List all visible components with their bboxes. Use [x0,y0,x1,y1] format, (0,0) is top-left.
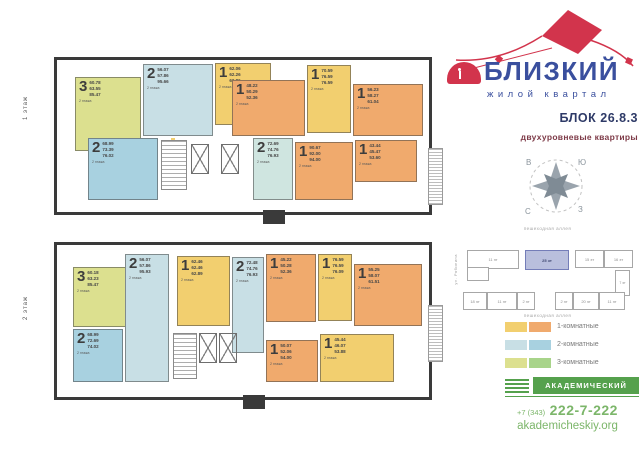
unit-level-note: 2 этажа [257,160,291,164]
stairs [173,333,197,379]
site-building: 2 эт [555,292,573,310]
apartment-unit[interactable]: 156.23 58.27 61.04 2 этажа [353,84,423,136]
site-building-label: 11 эт [497,299,506,304]
unit-level-note: 2 этажа [299,164,351,168]
brand-tagline: жилой квартал [487,89,611,100]
legend-label: 1-комнатные [557,323,599,330]
unit-areas: 43.44 45.47 53.60 [369,143,380,161]
apartment-unit[interactable]: 176.59 76.59 76.09 2 этажа [318,254,352,321]
site-building-label: 2 эт [522,299,529,304]
entrance [243,395,265,409]
unit-rooms: 1 [270,343,278,357]
elevator-shaft [199,333,217,363]
unit-areas: 56.23 58.27 61.04 [367,87,378,105]
site-building-label: 11 эт [488,257,497,262]
unit-areas: 90.67 92.00 94.00 [309,145,320,163]
site-building-label: 18 эт [470,299,479,304]
apartment-unit[interactable]: 143.44 45.47 53.60 2 этажа [355,140,417,182]
unit-rooms: 2 [257,141,265,155]
elevator-shaft [221,144,239,174]
apartment-unit[interactable]: 256.07 57.86 95.66 2 этажа [143,64,213,136]
unit-rooms: 2 [147,67,155,81]
site-building-label: 2 эт [560,299,567,304]
site-building-label: 20 эт [581,299,590,304]
apartment-unit[interactable]: 190.67 92.00 94.00 2 этажа [295,142,353,200]
alley-label-bottom: пешеходная аллея [455,313,640,318]
unit-level-note: 2 этажа [322,276,350,280]
developer-logo: АКАДЕМИЧЕСКИЙ [533,377,639,394]
logo-figure-icon [459,71,461,79]
unit-areas: 55.25 58.07 61.51 [368,267,379,285]
unit-areas: 60.78 63.55 85.47 [89,80,100,98]
elevator-shaft [191,144,209,174]
unit-areas: 45.22 50.28 52.36 [280,257,291,275]
unit-rooms: 2 [236,260,244,274]
legend: 1-комнатные 2-комнатные 3-комнатные [505,320,640,374]
unit-rooms: 1 [358,267,366,281]
unit-areas: 68.99 72.69 74.02 [87,332,98,350]
unit-areas: 56.07 57.86 95.66 [157,67,168,85]
site-building-label: 15 эт [585,257,594,262]
block-number: БЛОК 26.8.3 [440,111,638,125]
site-building: 2 эт [517,292,535,310]
unit-level-note: 2 этажа [92,160,156,164]
legend-row-1: 1-комнатные [505,320,640,338]
unit-level-note: 2 этажа [77,351,121,355]
alley-label-top: пешеходная аллея [455,226,640,231]
site-building-highlighted[interactable]: 25 эт [525,250,569,270]
unit-areas: 72.69 74.76 76.93 [267,141,278,159]
unit-areas: 76.59 76.59 76.09 [332,257,343,275]
unit-rooms: 2 [92,141,100,155]
unit-level-note: 2 этажа [270,362,316,366]
unit-areas: 45.44 46.07 53.88 [334,337,345,355]
svg-text:Ю: Ю [578,158,586,167]
legend-swatch [505,322,527,332]
unit-rooms: 1 [270,257,278,271]
unit-level-note: 2 этажа [324,356,392,360]
site-building: 15 эт [575,250,604,268]
site-building [467,267,489,281]
phone-prefix: +7 (343) [517,408,545,417]
floor-1-label: 1 этаж [23,88,29,128]
apartment-unit[interactable]: 148.22 50.29 52.36 2 этажа [232,80,305,136]
unit-level-note: 2 этажа [79,99,139,103]
legend-row-2: 2-комнатные [505,338,640,356]
unit-rooms: 1 [236,83,244,97]
legend-label: 3-комнатные [557,359,599,366]
unit-rooms: 1 [359,143,367,157]
unit-areas: 72.48 74.76 76.93 [246,260,257,278]
site-building: 11 эт [599,292,625,310]
compass-rose-icon: В Ю С З [514,150,599,222]
entrance [263,210,285,224]
plan-subtitle: двухуровневые квартиры [440,132,638,142]
site-building: 11 эт [487,292,517,310]
svg-text:З: З [578,205,583,214]
logo-divider [505,396,639,397]
unit-rooms: 3 [79,80,87,94]
site-building: 16 эт [604,250,633,268]
floor-plan-2: 360.18 63.23 85.47 2 этажа 256.07 57.86 … [54,242,432,400]
apartment-unit[interactable]: 256.07 57.86 95.93 2 этажа [125,254,169,382]
legend-swatch [529,340,551,350]
site-building-label: 16 эт [614,257,623,262]
legend-label: 2-комнатные [557,341,599,348]
brand-name: БЛИЗКИЙ [484,56,619,87]
svg-text:В: В [526,158,531,167]
legend-row-3: 3-комнатные [505,356,640,374]
elevator-shaft [219,333,237,363]
site-building-label: 7 эт [619,281,625,285]
street-label-left: ул. Рябинина [453,254,458,285]
unit-areas: 62.46 62.46 62.89 [191,259,202,277]
unit-rooms: 3 [77,270,85,284]
unit-areas: 50.07 52.06 54.00 [280,343,291,361]
apartment-unit[interactable]: 170.59 76.59 76.59 2 этажа [307,65,351,133]
unit-level-note: 2 этажа [236,279,262,283]
porch-hatch [428,148,443,205]
site-building-label: 25 эт [542,258,552,263]
unit-level-note: 2 этажа [129,276,167,280]
site-plan: пешеходная аллея 11 эт 25 эт 15 эт 16 эт… [455,226,640,318]
phone-number[interactable]: +7 (343) 222-7-222 [495,402,640,420]
porch-hatch [428,305,443,362]
unit-areas: 70.59 76.59 76.59 [321,68,332,86]
website-link[interactable]: akademicheskiy.org [495,420,640,432]
apartment-unit[interactable]: 155.25 58.07 61.51 2 этажа [354,264,422,326]
unit-rooms: 2 [77,332,85,346]
unit-rooms: 1 [181,259,189,273]
unit-level-note: 2 этажа [181,278,228,282]
unit-level-note: 2 этажа [147,86,211,90]
floor-plan-1: 360.78 63.55 85.47 2 этажа 256.07 57.86 … [54,57,432,215]
unit-rooms: 1 [311,68,319,82]
unit-rooms: 1 [324,337,332,351]
legend-swatch [505,358,527,368]
unit-level-note: 2 этажа [236,102,303,106]
apartment-unit[interactable]: 268.99 72.69 74.02 2 этажа [73,329,123,382]
unit-areas: 60.18 63.23 85.47 [87,270,98,288]
unit-rooms: 1 [357,87,365,101]
legend-swatch [529,358,551,368]
apartment-unit[interactable]: 145.44 46.07 53.88 2 этажа [320,334,394,382]
unit-level-note: 2 этажа [357,106,421,110]
apartment-unit[interactable]: 272.69 74.76 76.93 2 этажа [253,138,293,200]
unit-rooms: 1 [322,257,330,271]
apartment-unit[interactable]: 145.22 50.28 52.36 2 этажа [266,254,316,322]
svg-text:С: С [525,207,531,216]
unit-areas: 68.99 73.39 76.02 [102,141,113,159]
unit-rooms: 1 [299,145,307,159]
unit-level-note: 2 этажа [359,162,415,166]
unit-areas: 56.07 57.86 95.93 [139,257,150,275]
site-building: 20 эт [573,292,599,310]
apartment-unit[interactable]: 162.46 62.46 62.89 2 этажа [177,256,230,326]
legend-swatch [505,340,527,350]
unit-level-note: 2 этажа [311,87,349,91]
apartment-unit[interactable]: 268.99 73.39 76.02 2 этажа [88,138,158,200]
apartment-unit[interactable]: 150.07 52.06 54.00 2 этажа [266,340,318,382]
developer-logo-icon [505,379,529,393]
floor-2-label: 2 этаж [23,288,29,328]
unit-level-note: 2 этажа [358,286,420,290]
legend-swatch [529,322,551,332]
unit-level-note: 2 этажа [270,276,314,280]
phone-digits: 222-7-222 [550,402,618,418]
unit-rooms: 2 [129,257,137,271]
unit-rooms: 1 [219,66,227,80]
unit-areas: 48.22 50.29 52.36 [246,83,257,101]
site-building-label: 11 эт [607,299,616,304]
stairs [161,140,187,190]
site-building: 18 эт [463,292,487,310]
